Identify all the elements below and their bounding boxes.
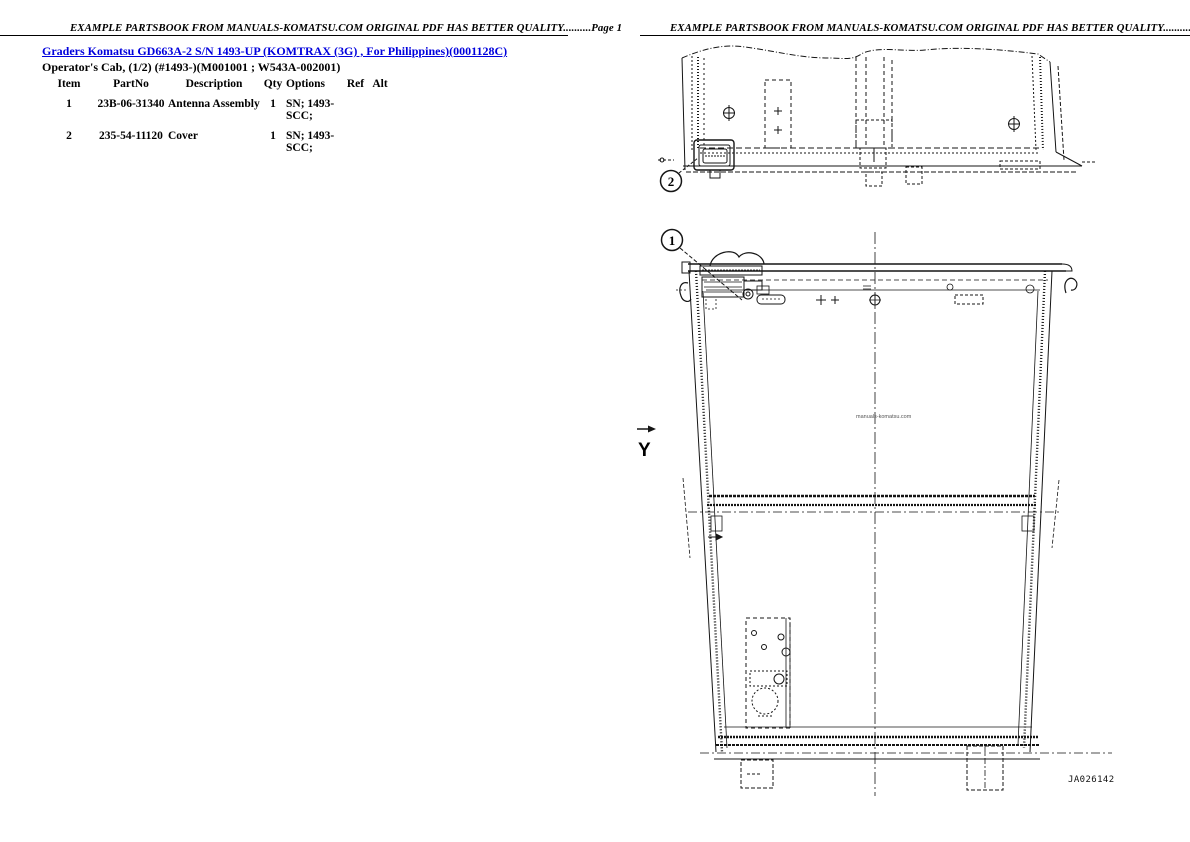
cab-diagrams: 2: [620, 35, 1140, 810]
col-header-ref: Ref: [342, 76, 369, 91]
cell-options: SN; 1493- SCC;: [286, 91, 342, 123]
callout-1-number: 1: [669, 233, 676, 248]
cell-partno: 23B-06-31340: [94, 91, 168, 123]
top-view-figure: 1 Y manuals-komatsu.com JA026142: [637, 230, 1115, 797]
col-header-qty: Qty: [260, 76, 286, 91]
y-direction-arrow: Y: [637, 426, 656, 462]
col-header-item: Item: [44, 76, 94, 91]
interior-cover-box: [746, 618, 790, 728]
option-scc: SCC;: [286, 142, 342, 154]
option-sn: SN; 1493-: [286, 130, 342, 142]
cell-ref: [342, 91, 369, 123]
parts-table-header-row: Item PartNo Description Qty Options Ref …: [44, 76, 391, 91]
cell-description: Cover: [168, 123, 260, 155]
side-view-figure: 2: [658, 46, 1096, 191]
callout-2: 2: [661, 158, 699, 192]
cell-options: SN; 1493- SCC;: [286, 123, 342, 155]
option-scc: SCC;: [286, 110, 342, 122]
option-sn: SN; 1493-: [286, 98, 342, 110]
cell-alt: [369, 123, 391, 155]
col-header-alt: Alt: [369, 76, 391, 91]
cell-item: 1: [44, 91, 94, 123]
col-header-description: Description: [168, 76, 260, 91]
cell-item: 2: [44, 123, 94, 155]
col-header-options: Options: [286, 76, 342, 91]
model-title-link[interactable]: Graders Komatsu GD663A-2 S/N 1493-UP (KO…: [42, 44, 507, 59]
cell-alt: [369, 91, 391, 123]
table-row: 2 235-54-11120 Cover 1 SN; 1493- SCC;: [44, 123, 391, 155]
page2-header: EXAMPLE PARTSBOOK FROM MANUALS-KOMATSU.C…: [640, 21, 1190, 36]
watermark-text: manuals-komatsu.com: [856, 414, 912, 420]
cell-description: Antenna Assembly: [168, 91, 260, 123]
table-row: 1 23B-06-31340 Antenna Assembly 1 SN; 14…: [44, 91, 391, 123]
callout-2-number: 2: [668, 174, 675, 189]
cell-partno: 235-54-11120: [94, 123, 168, 155]
cell-qty: 1: [260, 91, 286, 123]
col-header-partno: PartNo: [94, 76, 168, 91]
page1-header: EXAMPLE PARTSBOOK FROM MANUALS-KOMATSU.C…: [0, 21, 568, 36]
fixture-mark-icon: [723, 105, 1020, 132]
parts-table: Item PartNo Description Qty Options Ref …: [44, 76, 391, 155]
figure-code: JA026142: [1068, 775, 1115, 785]
section-subtitle: Operator's Cab, (1/2) (#1493-)(M001001 ;…: [42, 60, 340, 75]
cell-ref: [342, 123, 369, 155]
cell-qty: 1: [260, 123, 286, 155]
y-axis-label: Y: [638, 440, 651, 461]
